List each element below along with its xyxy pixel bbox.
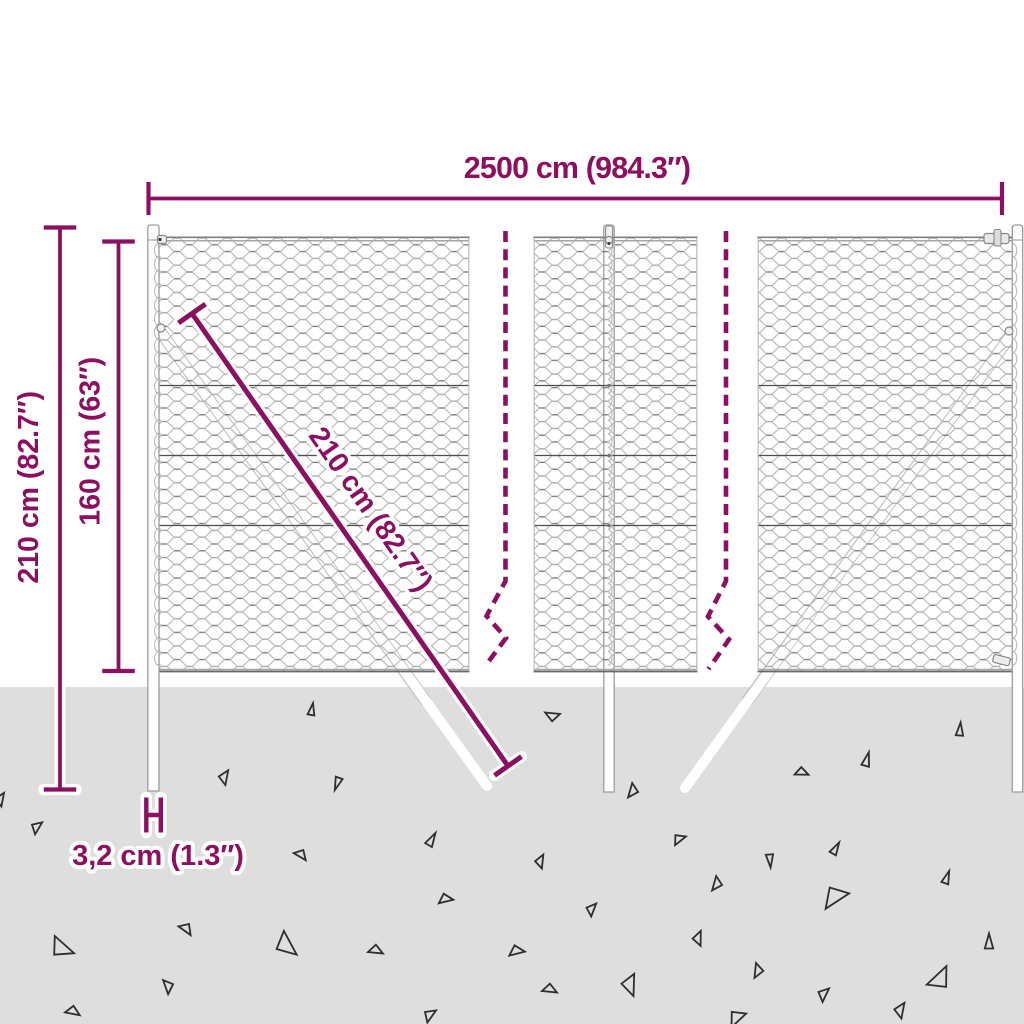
- svg-text:2500 cm (984.3″): 2500 cm (984.3″): [464, 151, 690, 185]
- svg-text:3,2 cm (1.3″): 3,2 cm (1.3″): [72, 840, 244, 872]
- svg-text:210 cm (82.7″): 210 cm (82.7″): [13, 391, 45, 584]
- svg-text:160 cm (63″): 160 cm (63″): [75, 357, 107, 526]
